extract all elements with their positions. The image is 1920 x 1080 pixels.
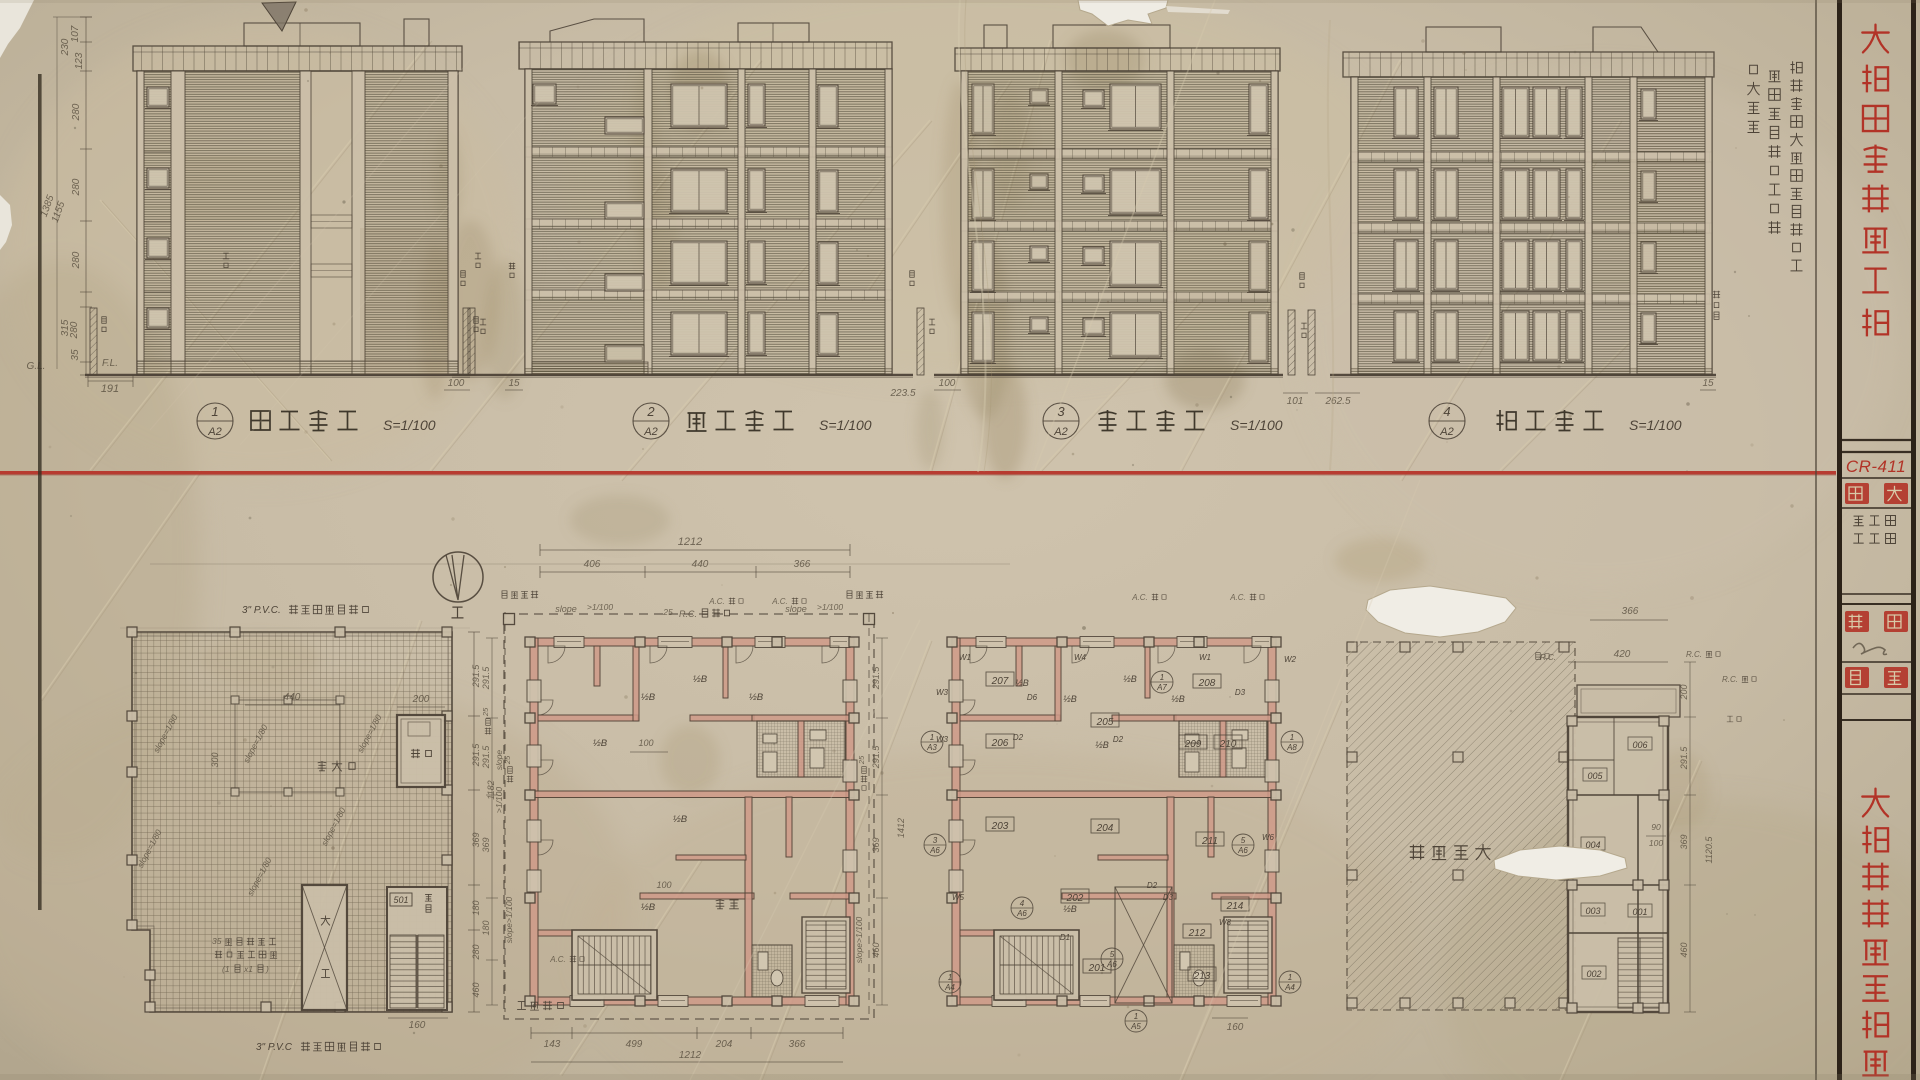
svg-text:214: 214 bbox=[1226, 901, 1244, 912]
svg-text:001: 001 bbox=[1632, 907, 1647, 917]
svg-text:280: 280 bbox=[71, 178, 82, 196]
svg-text:D2: D2 bbox=[1147, 881, 1158, 890]
svg-text:100: 100 bbox=[1649, 838, 1663, 848]
svg-text:½B: ½B bbox=[1063, 694, 1077, 704]
svg-text:420: 420 bbox=[1614, 649, 1631, 660]
svg-text:291.5: 291.5 bbox=[481, 745, 491, 770]
svg-text:262.5: 262.5 bbox=[1324, 396, 1350, 407]
svg-text:D6: D6 bbox=[1027, 693, 1038, 702]
svg-text:G.L.: G.L. bbox=[27, 361, 46, 372]
svg-text:206: 206 bbox=[991, 738, 1009, 749]
svg-text:366: 366 bbox=[794, 559, 811, 570]
svg-text:D2: D2 bbox=[1113, 735, 1124, 744]
svg-text:1: 1 bbox=[1290, 733, 1294, 742]
svg-text:101: 101 bbox=[1287, 396, 1304, 407]
svg-text:35: 35 bbox=[70, 349, 81, 361]
svg-text:003: 003 bbox=[1585, 906, 1600, 916]
svg-text:25: 25 bbox=[857, 755, 866, 765]
svg-text:½B: ½B bbox=[1063, 904, 1077, 914]
svg-text:280: 280 bbox=[71, 251, 82, 269]
svg-text:D1: D1 bbox=[1060, 933, 1070, 942]
svg-text:291.5: 291.5 bbox=[871, 745, 881, 770]
svg-text:R.C.: R.C. bbox=[1722, 675, 1738, 684]
svg-text:W3: W3 bbox=[936, 735, 949, 744]
svg-text:R.C.: R.C. bbox=[1540, 653, 1556, 662]
svg-text:202: 202 bbox=[1066, 893, 1084, 904]
svg-text:1: 1 bbox=[948, 973, 952, 982]
svg-text:460: 460 bbox=[1679, 942, 1689, 957]
svg-text:1: 1 bbox=[211, 404, 218, 419]
svg-text:406: 406 bbox=[584, 559, 601, 570]
svg-text:>1/100: >1/100 bbox=[494, 787, 504, 814]
svg-text:501: 501 bbox=[393, 895, 408, 905]
svg-text:A8: A8 bbox=[1286, 743, 1297, 752]
svg-text:½B: ½B bbox=[673, 814, 688, 825]
svg-text:1412: 1412 bbox=[896, 818, 906, 838]
svg-text:½B: ½B bbox=[1095, 740, 1109, 750]
svg-text:207: 207 bbox=[991, 676, 1009, 687]
svg-text:35: 35 bbox=[212, 936, 222, 946]
svg-text:W5: W5 bbox=[952, 893, 965, 902]
svg-text:A.C.: A.C. bbox=[549, 955, 566, 964]
svg-text:15: 15 bbox=[508, 378, 520, 389]
svg-text:A.C.: A.C. bbox=[1229, 593, 1246, 602]
svg-text:1: 1 bbox=[1288, 973, 1292, 982]
svg-text:369: 369 bbox=[871, 837, 881, 852]
svg-text:160: 160 bbox=[1227, 1022, 1244, 1033]
svg-text:slope: slope bbox=[555, 604, 577, 614]
svg-text:5: 5 bbox=[1241, 836, 1246, 845]
svg-text:25: 25 bbox=[662, 607, 673, 617]
svg-text:143: 143 bbox=[544, 1039, 561, 1050]
svg-text:slope: slope bbox=[785, 604, 807, 614]
svg-text:90: 90 bbox=[1651, 822, 1661, 832]
svg-text:S=1/100: S=1/100 bbox=[819, 417, 872, 433]
svg-text:291.5: 291.5 bbox=[1679, 746, 1689, 771]
svg-text:280: 280 bbox=[71, 103, 82, 121]
svg-text:205: 205 bbox=[1096, 717, 1114, 728]
svg-text:A6: A6 bbox=[1237, 846, 1248, 855]
svg-text:A2: A2 bbox=[1053, 426, 1067, 438]
svg-text:½B: ½B bbox=[1171, 694, 1185, 704]
svg-text:A7: A7 bbox=[1156, 683, 1167, 692]
svg-text:x1: x1 bbox=[243, 964, 253, 974]
svg-text:½B: ½B bbox=[593, 738, 608, 749]
svg-text:204: 204 bbox=[715, 1039, 733, 1050]
svg-text:200: 200 bbox=[412, 694, 430, 705]
svg-text:(1: (1 bbox=[222, 964, 230, 974]
svg-text:460: 460 bbox=[471, 982, 481, 997]
svg-text:280: 280 bbox=[471, 944, 481, 960]
svg-text:366: 366 bbox=[1622, 606, 1639, 617]
svg-text:1: 1 bbox=[1134, 1012, 1138, 1021]
svg-text:180: 180 bbox=[471, 900, 481, 915]
svg-text:100: 100 bbox=[638, 738, 653, 748]
svg-text:W3: W3 bbox=[936, 688, 949, 697]
svg-text:212: 212 bbox=[1188, 928, 1206, 939]
svg-text:½B: ½B bbox=[1123, 674, 1137, 684]
svg-text:D3: D3 bbox=[1163, 893, 1174, 902]
svg-text:D2: D2 bbox=[1013, 733, 1024, 742]
svg-text:slope>1/100: slope>1/100 bbox=[854, 916, 864, 963]
svg-text:291.5: 291.5 bbox=[471, 743, 481, 768]
svg-text:A5: A5 bbox=[1130, 1022, 1141, 1031]
svg-text:½B: ½B bbox=[1015, 678, 1029, 688]
svg-text:280: 280 bbox=[69, 321, 80, 339]
svg-text:W6: W6 bbox=[1262, 833, 1275, 842]
svg-text:180: 180 bbox=[481, 920, 491, 935]
svg-text:W1: W1 bbox=[1199, 653, 1211, 662]
svg-text:A.C.: A.C. bbox=[708, 597, 725, 606]
svg-text:1212: 1212 bbox=[679, 1050, 702, 1061]
svg-text:204: 204 bbox=[1096, 823, 1114, 834]
svg-text:366: 366 bbox=[789, 1039, 806, 1050]
svg-text:440: 440 bbox=[284, 692, 301, 703]
svg-text:006: 006 bbox=[1632, 740, 1647, 750]
svg-text:15: 15 bbox=[1702, 378, 1714, 389]
svg-text:A6: A6 bbox=[1016, 909, 1027, 918]
svg-text:1: 1 bbox=[930, 733, 934, 742]
svg-text:CR-411: CR-411 bbox=[1846, 457, 1906, 476]
svg-text:369: 369 bbox=[471, 832, 481, 847]
svg-text:1: 1 bbox=[1160, 673, 1164, 682]
svg-text:4: 4 bbox=[1020, 899, 1025, 908]
svg-text:A.C.: A.C. bbox=[771, 597, 788, 606]
svg-text:440: 440 bbox=[692, 559, 709, 570]
svg-text:191: 191 bbox=[101, 383, 119, 395]
svg-text:209: 209 bbox=[1184, 739, 1202, 750]
svg-text:>1/100: >1/100 bbox=[817, 602, 844, 612]
svg-text:213: 213 bbox=[1193, 971, 1211, 982]
svg-text:>1/100: >1/100 bbox=[587, 602, 614, 612]
svg-text:160: 160 bbox=[409, 1020, 426, 1031]
svg-text:A.C.: A.C. bbox=[1131, 593, 1148, 602]
svg-text:499: 499 bbox=[626, 1039, 643, 1050]
svg-text:210: 210 bbox=[1219, 739, 1237, 750]
svg-text:300: 300 bbox=[210, 752, 220, 767]
svg-text:A3: A3 bbox=[926, 743, 937, 752]
svg-text:3" P.V.C.: 3" P.V.C. bbox=[242, 605, 281, 616]
svg-text:W2: W2 bbox=[1284, 655, 1297, 664]
svg-text:005: 005 bbox=[1587, 771, 1603, 781]
svg-text:002: 002 bbox=[1586, 969, 1601, 979]
svg-text:291.5: 291.5 bbox=[471, 664, 481, 689]
svg-text:1212: 1212 bbox=[678, 536, 702, 548]
svg-text:3" P.V.C: 3" P.V.C bbox=[256, 1042, 293, 1053]
svg-text:R.C.: R.C. bbox=[679, 609, 697, 619]
svg-text:½B: ½B bbox=[641, 902, 656, 913]
svg-text:S=1/100: S=1/100 bbox=[383, 417, 436, 433]
svg-text:A2: A2 bbox=[207, 426, 221, 438]
svg-text:3: 3 bbox=[933, 836, 938, 845]
svg-text:): ) bbox=[265, 964, 269, 974]
svg-text:100: 100 bbox=[656, 880, 671, 890]
svg-text:½B: ½B bbox=[749, 692, 764, 703]
svg-text:25: 25 bbox=[481, 707, 490, 717]
svg-text:F.L.: F.L. bbox=[102, 358, 118, 369]
svg-text:W1: W1 bbox=[959, 653, 971, 662]
svg-text:W8: W8 bbox=[1219, 918, 1232, 927]
svg-text:S=1/100: S=1/100 bbox=[1629, 417, 1682, 433]
svg-text:2: 2 bbox=[646, 404, 655, 419]
svg-text:460: 460 bbox=[871, 942, 881, 957]
svg-text:A2: A2 bbox=[1439, 426, 1453, 438]
svg-text:W4: W4 bbox=[1074, 653, 1087, 662]
svg-text:A4: A4 bbox=[1284, 983, 1295, 992]
svg-text:107: 107 bbox=[70, 25, 81, 42]
svg-text:369: 369 bbox=[481, 837, 491, 852]
svg-text:25: 25 bbox=[503, 755, 512, 765]
svg-text:R.C.: R.C. bbox=[1686, 650, 1702, 659]
svg-text:223.5: 223.5 bbox=[889, 388, 915, 399]
svg-text:A4: A4 bbox=[944, 983, 955, 992]
svg-text:369: 369 bbox=[1679, 834, 1689, 849]
svg-text:½B: ½B bbox=[641, 692, 656, 703]
svg-text:5: 5 bbox=[1110, 950, 1115, 959]
svg-text:A6: A6 bbox=[929, 846, 940, 855]
svg-text:A2: A2 bbox=[643, 426, 657, 438]
svg-text:D3: D3 bbox=[1235, 688, 1246, 697]
svg-text:123: 123 bbox=[74, 52, 85, 69]
svg-text:1120.5: 1120.5 bbox=[1704, 836, 1714, 864]
svg-text:½B: ½B bbox=[693, 674, 708, 685]
svg-text:slope>1/100: slope>1/100 bbox=[504, 896, 514, 943]
svg-text:211: 211 bbox=[1201, 836, 1218, 847]
svg-text:200: 200 bbox=[1679, 684, 1689, 700]
svg-text:203: 203 bbox=[991, 821, 1009, 832]
svg-text:S=1/100: S=1/100 bbox=[1230, 417, 1283, 433]
svg-text:208: 208 bbox=[1198, 678, 1216, 689]
svg-text:100: 100 bbox=[939, 378, 956, 389]
svg-text:A6: A6 bbox=[1106, 960, 1117, 969]
svg-text:291.5: 291.5 bbox=[871, 666, 881, 691]
svg-text:291.5: 291.5 bbox=[481, 666, 491, 691]
svg-text:4: 4 bbox=[1443, 404, 1450, 419]
svg-text:100: 100 bbox=[448, 378, 465, 389]
